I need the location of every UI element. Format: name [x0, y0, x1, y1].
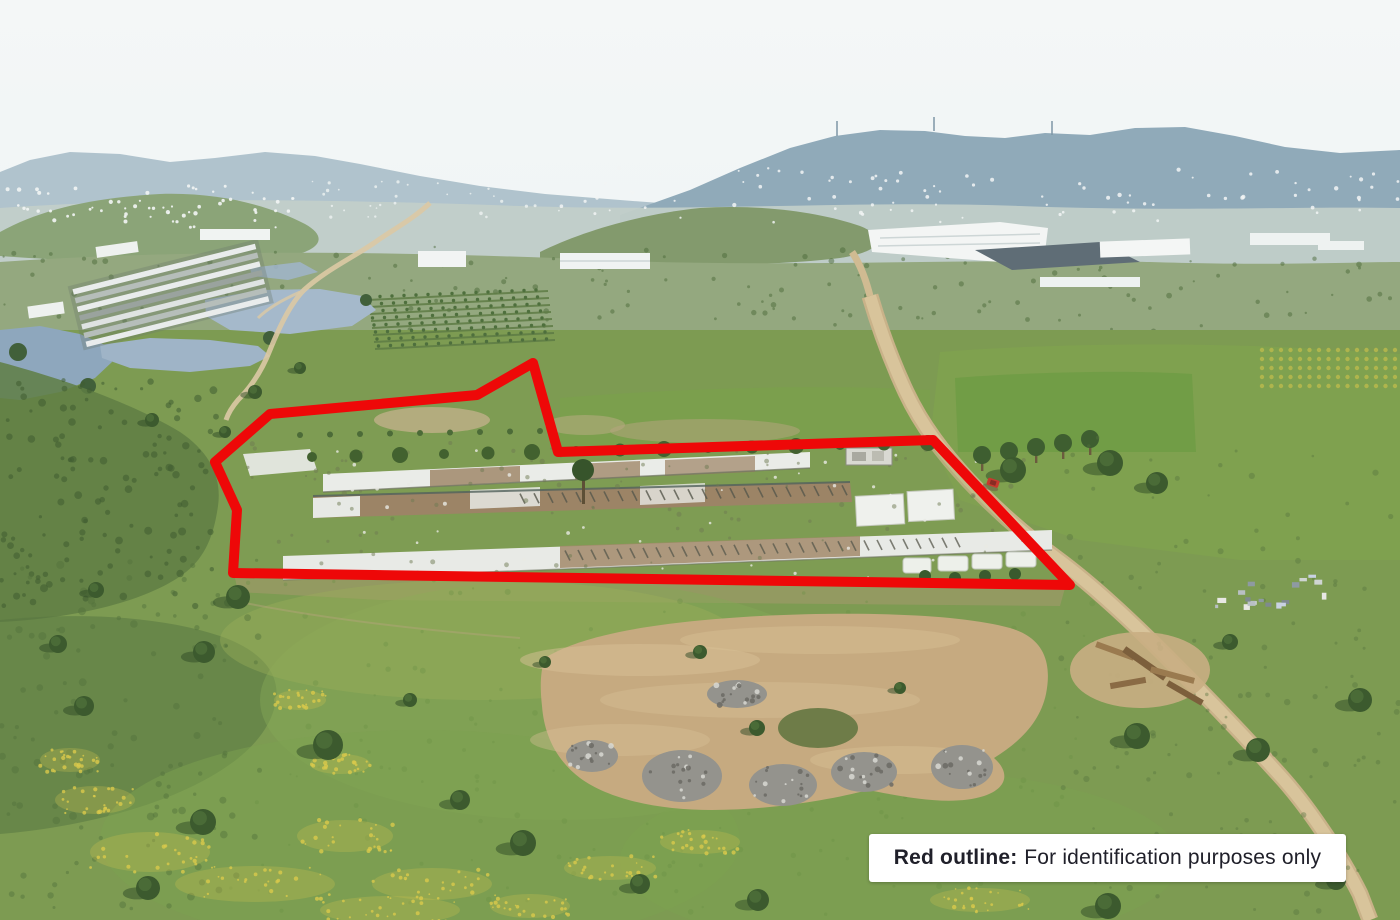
bare-earth-area	[520, 614, 1048, 810]
debris-logs	[1070, 632, 1210, 708]
disclaimer-label-bold: Red outline:	[894, 846, 1018, 870]
aerial-photo-canvas	[0, 0, 1400, 920]
disclaimer-label: Red outline: For identification purposes…	[869, 834, 1346, 882]
aerial-photograph: Red outline: For identification purposes…	[0, 0, 1400, 920]
disclaimer-label-text: For identification purposes only	[1024, 846, 1321, 870]
ruined-building	[846, 448, 892, 465]
